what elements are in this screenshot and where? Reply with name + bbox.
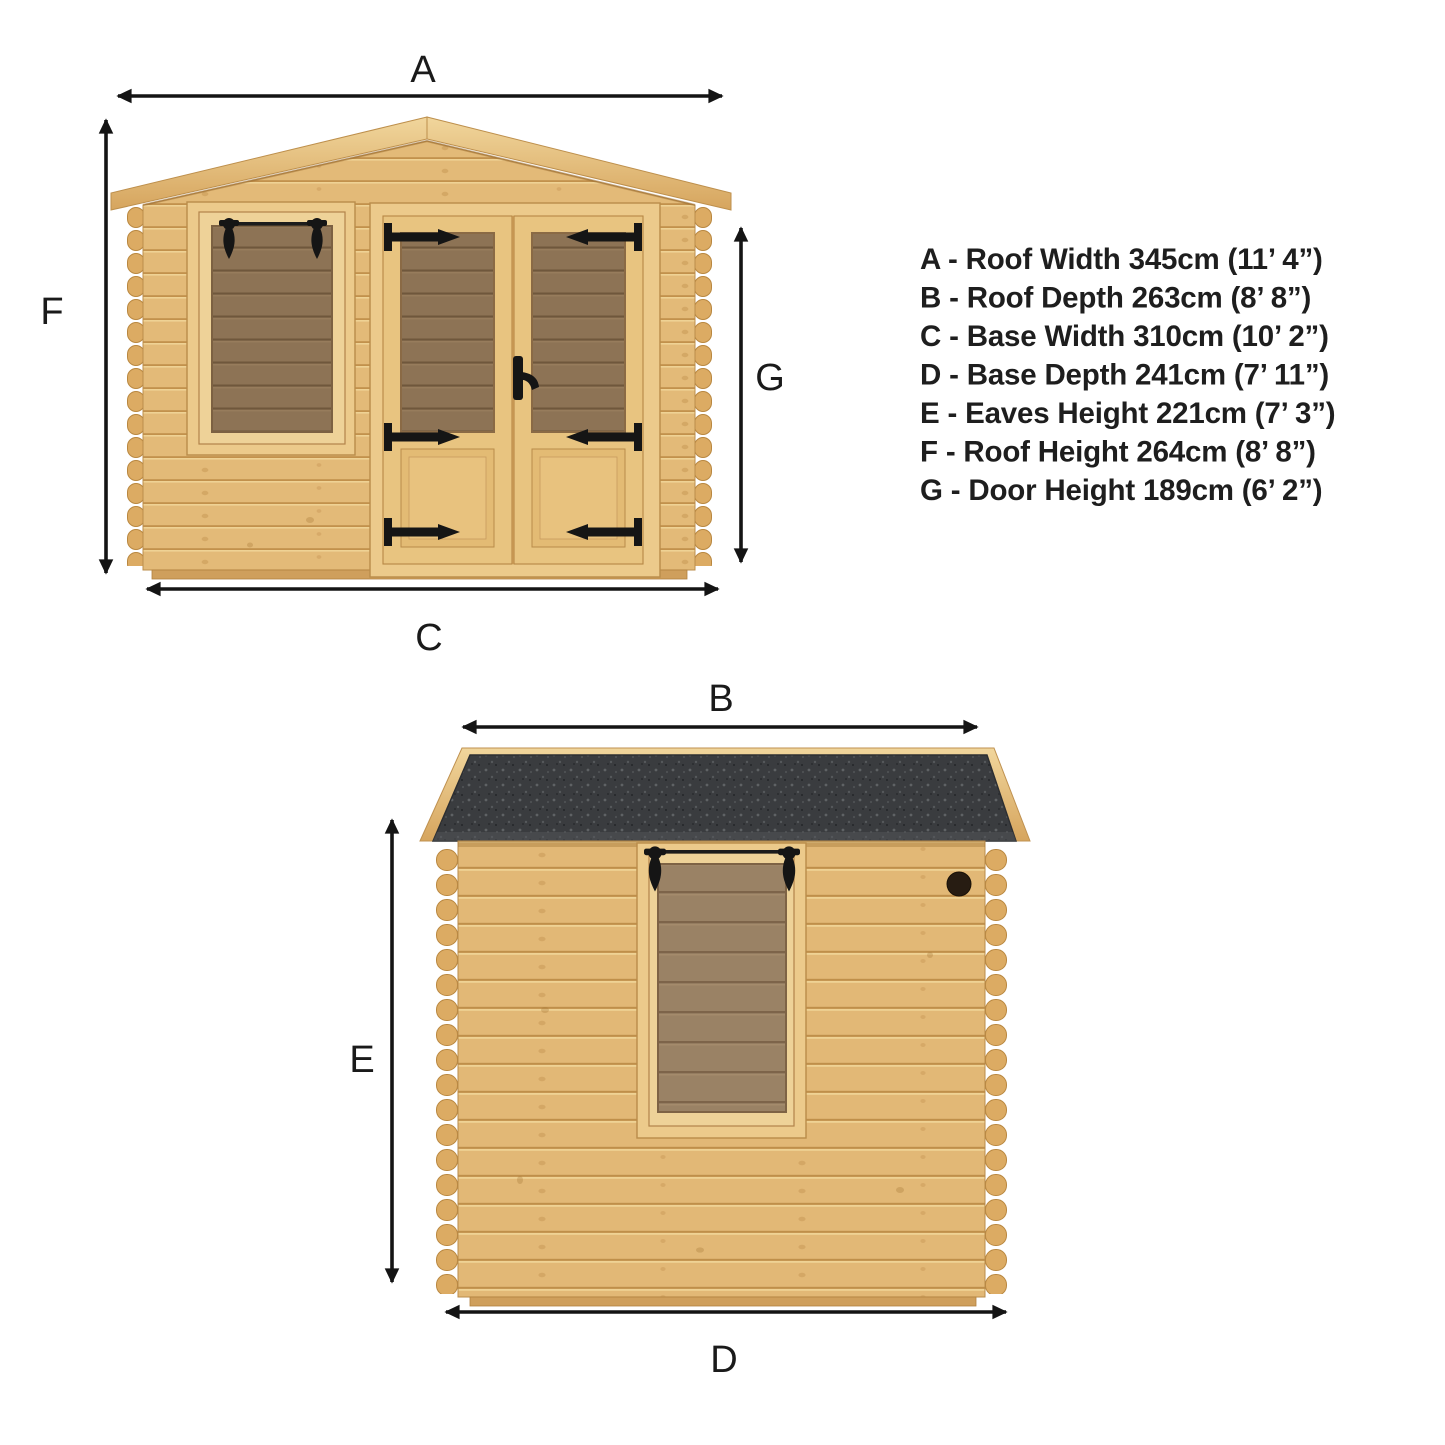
- dim-label-b: B: [708, 678, 733, 720]
- side-cabin: [420, 748, 1030, 1306]
- legend-item-g: G - Door Height 189cm (6’ 2”): [920, 474, 1322, 507]
- knot-hole: [947, 872, 971, 896]
- front-log-ends-left: [127, 206, 145, 566]
- dim-label-g: G: [755, 357, 785, 399]
- side-log-ends-left: [436, 848, 458, 1294]
- dim-label-d: D: [710, 1339, 737, 1381]
- front-view: A F: [40, 49, 784, 659]
- front-window: [187, 202, 355, 455]
- cabin-dimension-diagram: A F: [0, 0, 1445, 1445]
- door-glass-right: [532, 233, 625, 432]
- door-glass-left: [401, 233, 494, 432]
- window-stay-rod: [653, 850, 791, 854]
- dim-label-a: A: [410, 49, 436, 91]
- front-dim-roof-height: F: [40, 120, 106, 573]
- side-window-glass: [658, 864, 786, 1112]
- door-leaf-right: [514, 216, 643, 564]
- legend-item-e: E - Eaves Height 221cm (7’ 3”): [920, 397, 1335, 430]
- side-dim-base-depth: D: [446, 1312, 1006, 1381]
- dim-label-e: E: [349, 1039, 374, 1081]
- side-window: [637, 843, 806, 1138]
- legend-item-c: C - Base Width 310cm (10’ 2”): [920, 320, 1329, 353]
- legend-item-b: B - Roof Depth 263cm (8’ 8”): [920, 282, 1311, 315]
- side-roof-edge-highlight: [433, 832, 1016, 841]
- front-dim-door-height: G: [741, 228, 785, 562]
- side-view: B: [349, 678, 1030, 1381]
- front-log-ends-right: [694, 206, 712, 566]
- front-doors: [370, 203, 660, 577]
- side-base-skid: [470, 1297, 976, 1306]
- side-dim-roof-depth: B: [463, 678, 977, 727]
- side-dim-eaves-height: E: [349, 820, 392, 1282]
- legend-item-a: A - Roof Width 345cm (11’ 4”): [920, 243, 1323, 276]
- dim-label-c: C: [415, 617, 442, 659]
- front-dim-roof-width: A: [118, 49, 722, 96]
- legend-item-f: F - Roof Height 264cm (8’ 8”): [920, 436, 1316, 469]
- side-log-ends-right: [985, 848, 1007, 1294]
- legend-item-d: D - Base Depth 241cm (7’ 11”): [920, 359, 1329, 392]
- diagram-canvas: A F: [0, 0, 1445, 1445]
- front-cabin: [111, 117, 731, 579]
- side-roof-felt: [433, 755, 1016, 841]
- dim-label-f: F: [40, 291, 63, 333]
- front-dim-base-width: C: [147, 589, 718, 659]
- legend: A - Roof Width 345cm (11’ 4”) B - Roof D…: [920, 243, 1335, 507]
- door-leaf-left: [383, 216, 512, 564]
- window-stay-rod: [229, 222, 317, 226]
